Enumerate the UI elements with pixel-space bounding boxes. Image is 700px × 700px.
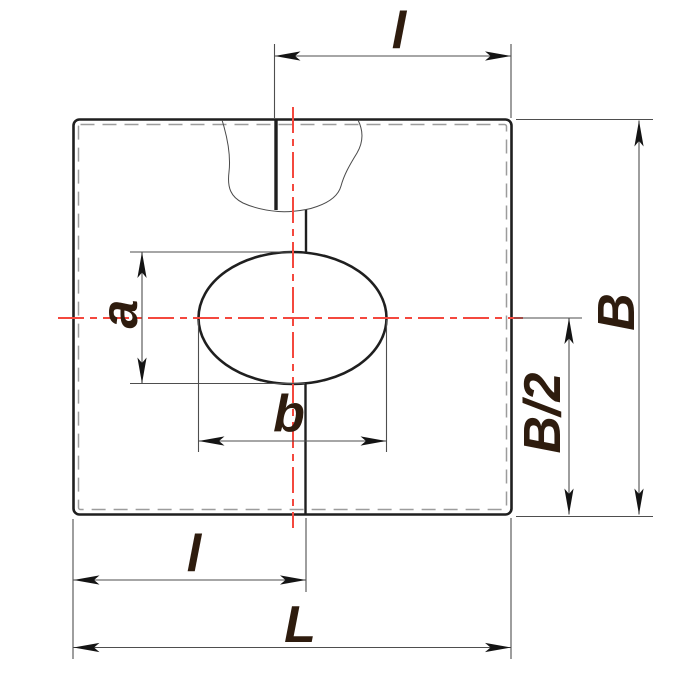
dimension-B-half: B/2: [514, 318, 582, 515]
dimension-label-B-half: B/2: [514, 372, 572, 453]
break-line-right: [306, 120, 362, 210]
dimension-label-b: b: [273, 385, 305, 443]
dimension-label-L: L: [284, 596, 316, 654]
dimension-top-l: l: [275, 2, 512, 118]
technical-drawing-svg: l B B/2 a b: [0, 0, 700, 700]
dimension-label-bottom-l: l: [187, 525, 203, 583]
dimension-label-a: a: [91, 300, 149, 329]
dimension-bottom-l: l: [73, 518, 306, 659]
dimension-label-B: B: [588, 293, 646, 331]
dimension-label-top-l: l: [392, 2, 408, 60]
dimension-L: L: [74, 518, 512, 659]
drawing-canvas: l B B/2 a b: [0, 0, 700, 700]
